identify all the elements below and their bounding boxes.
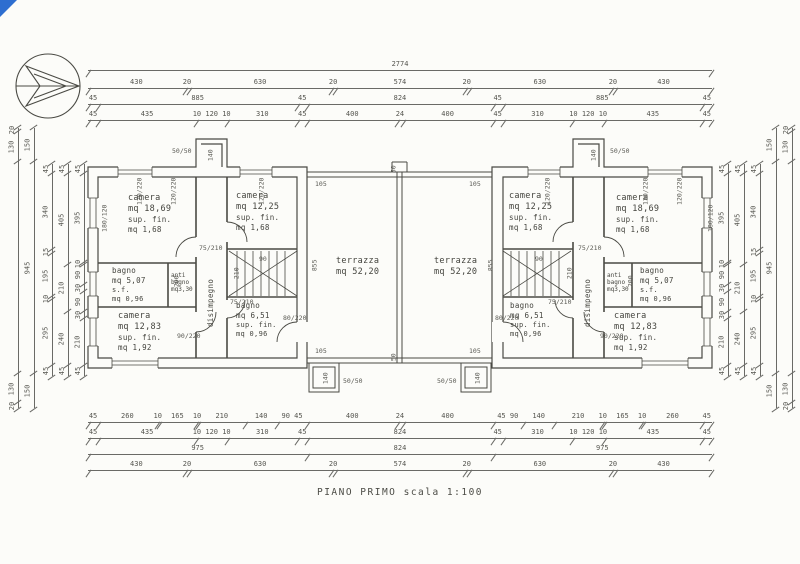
room-fin-label: s.f. [640,286,674,295]
room-area: mq 52,20 [434,267,477,278]
room-name: camera [614,311,657,322]
floor-plan-page: 2774 43020630205742063020430 45885458244… [0,0,800,564]
room-label-camera-1283-left: camera mq 12,83 sup. fin. mq 1,92 [118,311,161,353]
dim-window-120: 120/220 [544,178,551,205]
dim-segment: 400 [307,410,397,426]
dim-segment: 295 [40,300,56,366]
dim-segment: 130 [6,132,22,161]
room-area: mq 5,07 [640,276,674,286]
dim-segment: 45 [297,426,307,442]
dim-door-90: 90/220 [600,333,623,340]
dim-segment: 430 [615,76,712,92]
dim-140: 140 [323,372,330,384]
room-label-terrazza-left: terrazza mq 52,20 [336,256,379,278]
dim-window-120: 120/220 [642,178,649,205]
dim-label: 400 [346,111,359,118]
dim-label: 210 [735,282,742,295]
dim-label: 150 [25,385,32,398]
dim-segment: 400 [403,410,493,426]
room-name: terrazza [434,256,477,267]
dim-chain-bottom-4: 43020630205742063020430 [88,458,712,474]
room-fin-area: mq 0,96 [112,295,146,304]
dim-segment: 20 [6,403,22,407]
dim-label: 240 [59,333,66,346]
room-name: bagno [510,301,551,311]
dim-segment: 210 [72,319,88,366]
room-fin-label: sup. fin. [616,215,659,225]
dim-segment: 824 [307,442,492,458]
dim-label: 45 [493,111,501,118]
room-fin-area: mq 1,68 [509,223,552,233]
dim-segment: 310 [503,108,573,124]
dim-label: 210 [75,336,82,349]
dim-chain-top-4: 4543510 120 1031045400244004531010 120 1… [88,108,712,124]
dim-label: 10 120 10 [569,429,607,436]
dim-segment: 340 [748,174,764,250]
dim-segment: 195 [748,254,764,298]
dim-chain-right-1: 150945150 [764,128,780,408]
dim-segment: 885 [98,92,297,108]
dim-label: 90 [75,271,82,279]
room-fin-area: mq 1,92 [118,343,161,353]
dim-segment: 400 [307,108,397,124]
dim-label: 824 [394,95,407,102]
dim-chain-bottom-2: 4543510 120 10310458244531010 120 104354… [88,426,712,442]
dim-label: 90 [719,271,726,279]
dim-segment: 150 [764,374,780,408]
room-fin-area: mq 0,96 [236,330,277,339]
dim-segment: 140 [523,410,554,426]
dim-50-50: 50/50 [172,148,192,155]
dim-segment [6,162,22,375]
dim-label: 10 120 10 [569,111,607,118]
dim-segment: 195 [40,254,56,298]
dim-140: 140 [475,372,482,384]
dim-label: 45 [493,429,501,436]
dim-label: 45 90 [497,413,518,420]
dim-segment: 210 [716,319,732,366]
dim-segment: 45 [702,108,712,124]
room-name: bagno [607,279,629,286]
dim-segment: 45 [72,366,88,376]
dim-label: 430 [130,79,143,86]
dim-segment: 90 45 [277,410,307,426]
dim-segment: 210 [554,410,601,426]
dim-segment: 45 [702,410,712,426]
dim-label: 310 [256,429,269,436]
dim-label: 260 [666,413,679,420]
dim-door-75: 75/210 [548,299,571,306]
dim-segment: 140 [245,410,276,426]
dim-label: 195 [751,269,758,282]
dim-segment: 310 [227,108,297,124]
dim-label: 395 [719,212,726,225]
dim-label: 130 [783,141,790,154]
room-fin-area: mq 1,92 [614,343,657,353]
dim-140: 140 [208,149,215,161]
dim-label: 574 [394,461,407,468]
dim-segment: 630 [469,76,611,92]
dim-segment: 395 [716,174,732,263]
dim-segment: 310 [227,426,297,442]
dim-label: 45 [751,367,758,375]
dim-segment: 630 [189,458,331,474]
dim-chain-left-0: 2013013020 [6,128,22,408]
dim-segment: 435 [98,108,196,124]
dim-label: 295 [751,326,758,339]
room-fin-label: s.f. [112,286,146,295]
dim-segment: 45 [702,92,712,108]
dim-segment: 45 [493,92,503,108]
dim-label: 90 [75,298,82,306]
dim-segment: 945 [764,162,780,375]
dim-segment: 45 [40,366,56,376]
dim-segment: 405 [732,174,748,265]
room-area: mq 5,07 [112,276,146,286]
dim-label: 45 [89,111,97,118]
dim-stair-90: 90 [259,256,267,263]
room-label-bagno-507-right: bagno mq 5,07 s.f. mq 0,96 [640,266,674,304]
drawing-title: PIANO PRIMO scala 1:100 [0,487,800,498]
dim-label: 45 [89,413,97,420]
room-area: mq 12,83 [118,322,161,333]
dim-105: 105 [469,181,481,188]
dim-label: 630 [254,461,267,468]
dim-segment: 45 [493,426,503,442]
dim-label: 45 [89,95,97,102]
room-area: mq 18,69 [128,204,171,215]
room-name: bagno [640,266,674,276]
dim-label: 45 [751,165,758,173]
dim-label: 10 120 10 [193,111,231,118]
dim-label: 240 [735,333,742,346]
dim-chain-left-3: 4540521024045 [56,164,72,376]
dim-200: 200 [628,275,635,287]
room-name: bagno [112,266,146,276]
dim-label: 824 [394,445,407,452]
dim-label: 150 [767,385,774,398]
dim-segment: 975 [88,442,307,458]
dim-50-50: 50/50 [610,148,630,155]
room-fin-area: mq 0,96 [510,330,551,339]
dim-105: 105 [315,181,327,188]
room-fin-label: sup. fin. [236,213,279,223]
dim-chain-left-4: 45395109030903021045 [72,164,88,376]
dim-chain-top-total: 2774 [88,58,712,74]
dim-segment: 45 [88,92,98,108]
dim-segment: 150 [764,128,780,162]
dim-label: 45 [43,367,50,375]
dim-label: 945 [767,262,774,275]
dim-door-80: 80/220 [495,315,518,322]
dim-chain-left-2: 45340151951029545 [40,164,56,376]
room-area: mq 52,20 [336,267,379,278]
dim-200: 200 [174,275,181,287]
dim-label: 90 45 [282,413,303,420]
room-fin-label: sup. fin. [236,321,277,330]
dim-label: 45 [59,367,66,375]
dim-segment: 824 [307,92,492,108]
dim-label: 405 [59,213,66,226]
dim-window-120: 120/220 [170,178,177,205]
dim-segment: 45 [56,366,72,376]
dim-label: 45 [43,165,50,173]
dim-label: 45 [703,111,711,118]
dim-segment: 210 [56,265,72,312]
dim-door-75: 75/210 [230,299,253,306]
dim-window-120: 120/220 [258,178,265,205]
dim-segment: 430 [88,458,185,474]
dim-label: 195 [43,269,50,282]
dim-label: 295 [43,326,50,339]
dim-segment: 340 [40,174,56,250]
dim-label: 400 [441,413,454,420]
dim-segment: 150 [22,128,38,162]
dim-label: 45 [493,95,501,102]
dim-label: 45 [703,95,711,102]
dim-label: 310 [531,429,544,436]
dim-label: 400 [346,413,359,420]
dim-segment: 45 [88,108,98,124]
dim-segment: 45 [716,366,732,376]
dim-label: 45 [59,165,66,173]
dim-segment: 395 [72,174,88,263]
dim-segment: 45 [88,410,98,426]
dim-210: 210 [234,267,241,279]
dim-label: 340 [751,206,758,219]
dim-segment: 400 [403,108,493,124]
dim-segment: 240 [732,312,748,366]
dim-segment: 435 [604,426,702,442]
dim-label: 210 [572,413,585,420]
dim-label: 340 [43,206,50,219]
dim-label: 45 [298,111,306,118]
dim-door-75: 75/210 [578,245,601,252]
dim-label: 45 [89,429,97,436]
room-fin-area: mq 0,96 [640,295,674,304]
dim-door-90: 90/220 [177,333,200,340]
dim-label: 310 [531,111,544,118]
dim-segment: 20 [780,403,796,407]
dim-label: 435 [141,429,154,436]
dim-segment: 45 [88,426,98,442]
dim-label: 2774 [392,61,409,68]
dim-label: 165 [616,413,629,420]
dim-chain-right-3: 4540521024045 [732,164,748,376]
dim-segment: 430 [615,458,712,474]
room-area: mq3,30 [607,286,629,293]
north-arrow-icon [16,54,80,118]
dim-label: 45 [735,165,742,173]
dim-label: 630 [534,461,547,468]
dim-label: 20 [9,401,16,409]
room-fin-area: mq 1,68 [616,225,659,235]
dim-label: 210 [215,413,228,420]
dim-window-180: 180/120 [707,205,714,232]
dim-chain-left-1: 150945150 [22,128,38,408]
dim-segment: 430 [88,76,185,92]
dim-label: 140 [532,413,545,420]
dim-50: 50 [391,353,398,361]
dim-105: 105 [315,348,327,355]
room-name: terrazza [336,256,379,267]
dim-label: 430 [130,461,143,468]
dim-label: 150 [25,139,32,152]
dim-window-180: 180/120 [101,205,108,232]
dim-segment: 310 [503,426,573,442]
dim-stair-90: 90 [535,256,543,263]
dim-window-120: 120/220 [136,178,143,205]
dim-segment [780,162,796,375]
left-entry-gap [296,322,308,342]
dim-label: 210 [719,336,726,349]
exterior-landings [309,363,491,392]
dim-label: 574 [394,79,407,86]
room-label-bagno-651-left: bagno mq 6,51 sup. fin. mq 0,96 [236,301,277,339]
dim-105: 105 [469,348,481,355]
dim-label: 165 [171,413,184,420]
dim-50-50: 50/50 [437,378,457,385]
dim-chain-right-0: 2013013020 [780,128,796,408]
dim-segment: 45 [748,366,764,376]
dim-855: 855 [312,259,319,271]
dim-50: 50 [391,165,398,173]
room-name: disimpegno [583,275,593,331]
room-area: mq 18,69 [616,204,659,215]
dim-door-80: 80/220 [283,315,306,322]
right-entry-gap [492,322,504,342]
dim-segment: 945 [22,162,38,375]
room-label-camera-1869-right: camera mq 18,69 sup. fin. mq 1,68 [616,193,659,235]
dim-segment: 130 [780,132,796,161]
dim-label: 45 [719,165,726,173]
dim-label: 90 [719,298,726,306]
dim-segment: 210 [198,410,245,426]
dim-segment: 165 [604,410,641,426]
dim-label: 630 [534,79,547,86]
room-fin-label: sup. fin. [510,321,551,330]
dim-segment: 435 [604,108,702,124]
dim-label: 885 [191,95,204,102]
room-label-disimpegno-left: disimpegno [206,275,216,331]
dim-label: 885 [596,95,609,102]
dim-segment: 630 [189,76,331,92]
room-name: camera [118,311,161,322]
room-fin-area: mq 1,68 [236,223,279,233]
dim-label: 150 [767,139,774,152]
dim-segment: 295 [748,300,764,366]
dim-label: 975 [596,445,609,452]
dim-label: 400 [441,111,454,118]
dim-chain-top-2: 43020630205742063020430 [88,76,712,92]
room-fin-area: mq 1,68 [128,225,171,235]
dim-label: 824 [394,429,407,436]
dim-segment: 240 [56,312,72,366]
room-label-terrazza-right: terrazza mq 52,20 [434,256,477,278]
dim-label: 310 [256,111,269,118]
room-name: anti [607,272,629,279]
dim-segment: 2774 [88,58,712,74]
dim-segment: 45 [297,108,307,124]
dim-label: 435 [647,429,660,436]
dim-label: 45 [298,95,306,102]
room-fin-label: sup. fin. [118,333,161,343]
dim-855: 855 [488,259,495,271]
dim-label: 210 [59,282,66,295]
dim-label: 45 [298,429,306,436]
dim-label: 130 [9,383,16,396]
dim-label: 395 [75,212,82,225]
dim-label: 430 [657,79,670,86]
dim-label: 130 [783,383,790,396]
dim-label: 20 [783,401,790,409]
dim-segment: 150 [22,374,38,408]
room-area: mq3,30 [171,286,193,293]
dim-segment: 45 [493,108,503,124]
dim-chain-top-3: 45885458244588545 [88,92,712,108]
dim-140: 140 [591,149,598,161]
dim-label: 130 [9,141,16,154]
dim-segment: 260 [643,410,701,426]
dim-window-120: 120/220 [676,178,683,205]
dim-segment: 45 [297,92,307,108]
room-label-bagno-507-left: bagno mq 5,07 s.f. mq 0,96 [112,266,146,304]
room-name: disimpegno [206,275,216,331]
dim-chain-bottom-1: 45260101651021014090 454002440045 901402… [88,410,712,426]
room-fin-label: sup. fin. [128,215,171,225]
dim-segment: 10 120 10 [572,426,603,442]
dim-label: 45 [75,165,82,173]
dim-label: 45 [719,367,726,375]
dim-label: 45 [703,429,711,436]
dim-label: 405 [735,213,742,226]
dim-label: 45 [75,367,82,375]
dim-segment: 210 [732,265,748,312]
room-name: camera [616,193,659,204]
dim-chain-right-4: 45395109030903021045 [716,164,732,376]
dim-50-50: 50/50 [343,378,363,385]
dim-segment: 45 [702,426,712,442]
dim-210: 210 [567,267,574,279]
dim-segment: 45 90 [493,410,523,426]
room-fin-label: sup. fin. [509,213,552,223]
dim-segment: 975 [493,442,712,458]
dim-segment: 10 120 10 [196,426,227,442]
dim-segment: 574 [335,76,464,92]
dim-label: 945 [25,262,32,275]
dim-label: 140 [255,413,268,420]
dim-segment: 574 [335,458,464,474]
dim-label: 435 [647,111,660,118]
dim-chain-bottom-3: 975824975 [88,442,712,458]
dim-segment: 630 [469,458,611,474]
dim-label: 260 [121,413,134,420]
dim-segment: 824 [307,426,492,442]
dim-chain-right-2: 45340151951029545 [748,164,764,376]
dim-label: 975 [191,445,204,452]
dim-label: 630 [254,79,267,86]
dim-segment: 10 120 10 [572,108,603,124]
dim-label: 435 [141,111,154,118]
room-label-disimpegno-right: disimpegno [583,275,593,331]
dim-segment: 45 [732,366,748,376]
dim-segment: 165 [159,410,196,426]
dim-segment: 885 [503,92,702,108]
room-area: mq 6,51 [236,311,277,321]
dim-door-75: 75/210 [199,245,222,252]
dim-segment: 10 120 10 [196,108,227,124]
dim-label: 45 [703,413,711,420]
